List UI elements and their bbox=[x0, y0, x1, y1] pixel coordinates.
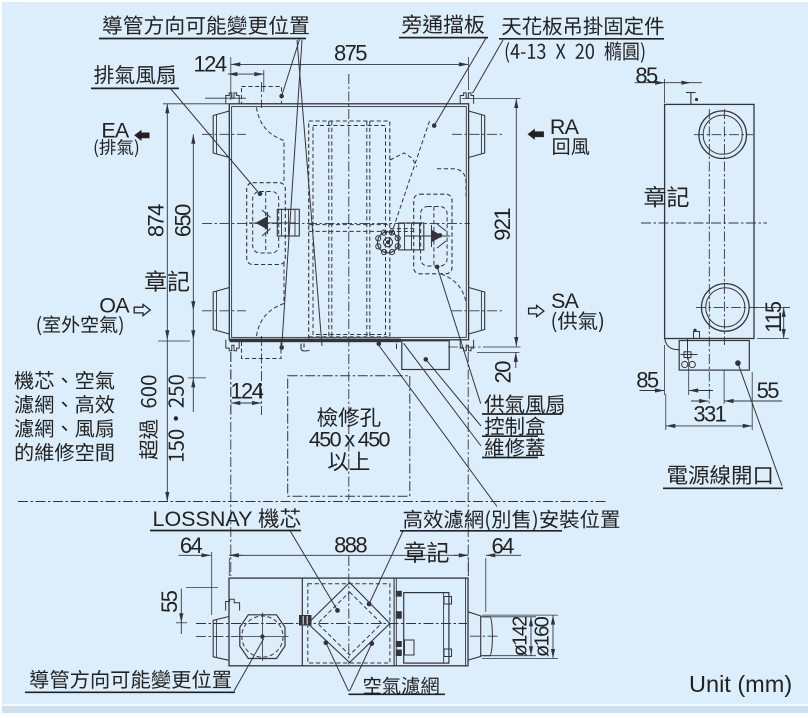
svg-text:450 x 450: 450 x 450 bbox=[309, 428, 391, 452]
svg-text:ø160: ø160 bbox=[532, 616, 554, 657]
svg-text:EA: EA bbox=[101, 119, 130, 143]
svg-text:RA: RA bbox=[550, 115, 580, 139]
svg-text:55: 55 bbox=[757, 378, 780, 403]
svg-text:331: 331 bbox=[693, 402, 726, 427]
svg-text:888: 888 bbox=[334, 532, 367, 557]
svg-text:875: 875 bbox=[334, 40, 367, 65]
svg-text:ø142: ø142 bbox=[509, 616, 531, 657]
svg-text:20: 20 bbox=[491, 361, 516, 384]
svg-text:LOSSNAY: LOSSNAY bbox=[153, 507, 253, 531]
svg-text:921: 921 bbox=[490, 208, 515, 241]
svg-text:55: 55 bbox=[157, 590, 182, 613]
svg-text:85: 85 bbox=[635, 63, 658, 88]
svg-text:OA: OA bbox=[99, 294, 130, 318]
svg-text:124: 124 bbox=[230, 378, 263, 403]
svg-text:SA: SA bbox=[551, 289, 580, 313]
svg-text:64: 64 bbox=[180, 533, 203, 558]
svg-text:115: 115 bbox=[761, 301, 786, 333]
svg-text:124: 124 bbox=[194, 52, 227, 77]
svg-text:874: 874 bbox=[144, 204, 169, 237]
svg-text:64: 64 bbox=[491, 534, 514, 559]
svg-text:85: 85 bbox=[636, 368, 659, 393]
svg-text:650: 650 bbox=[170, 204, 195, 237]
svg-text:Unit (mm): Unit (mm) bbox=[689, 671, 792, 697]
